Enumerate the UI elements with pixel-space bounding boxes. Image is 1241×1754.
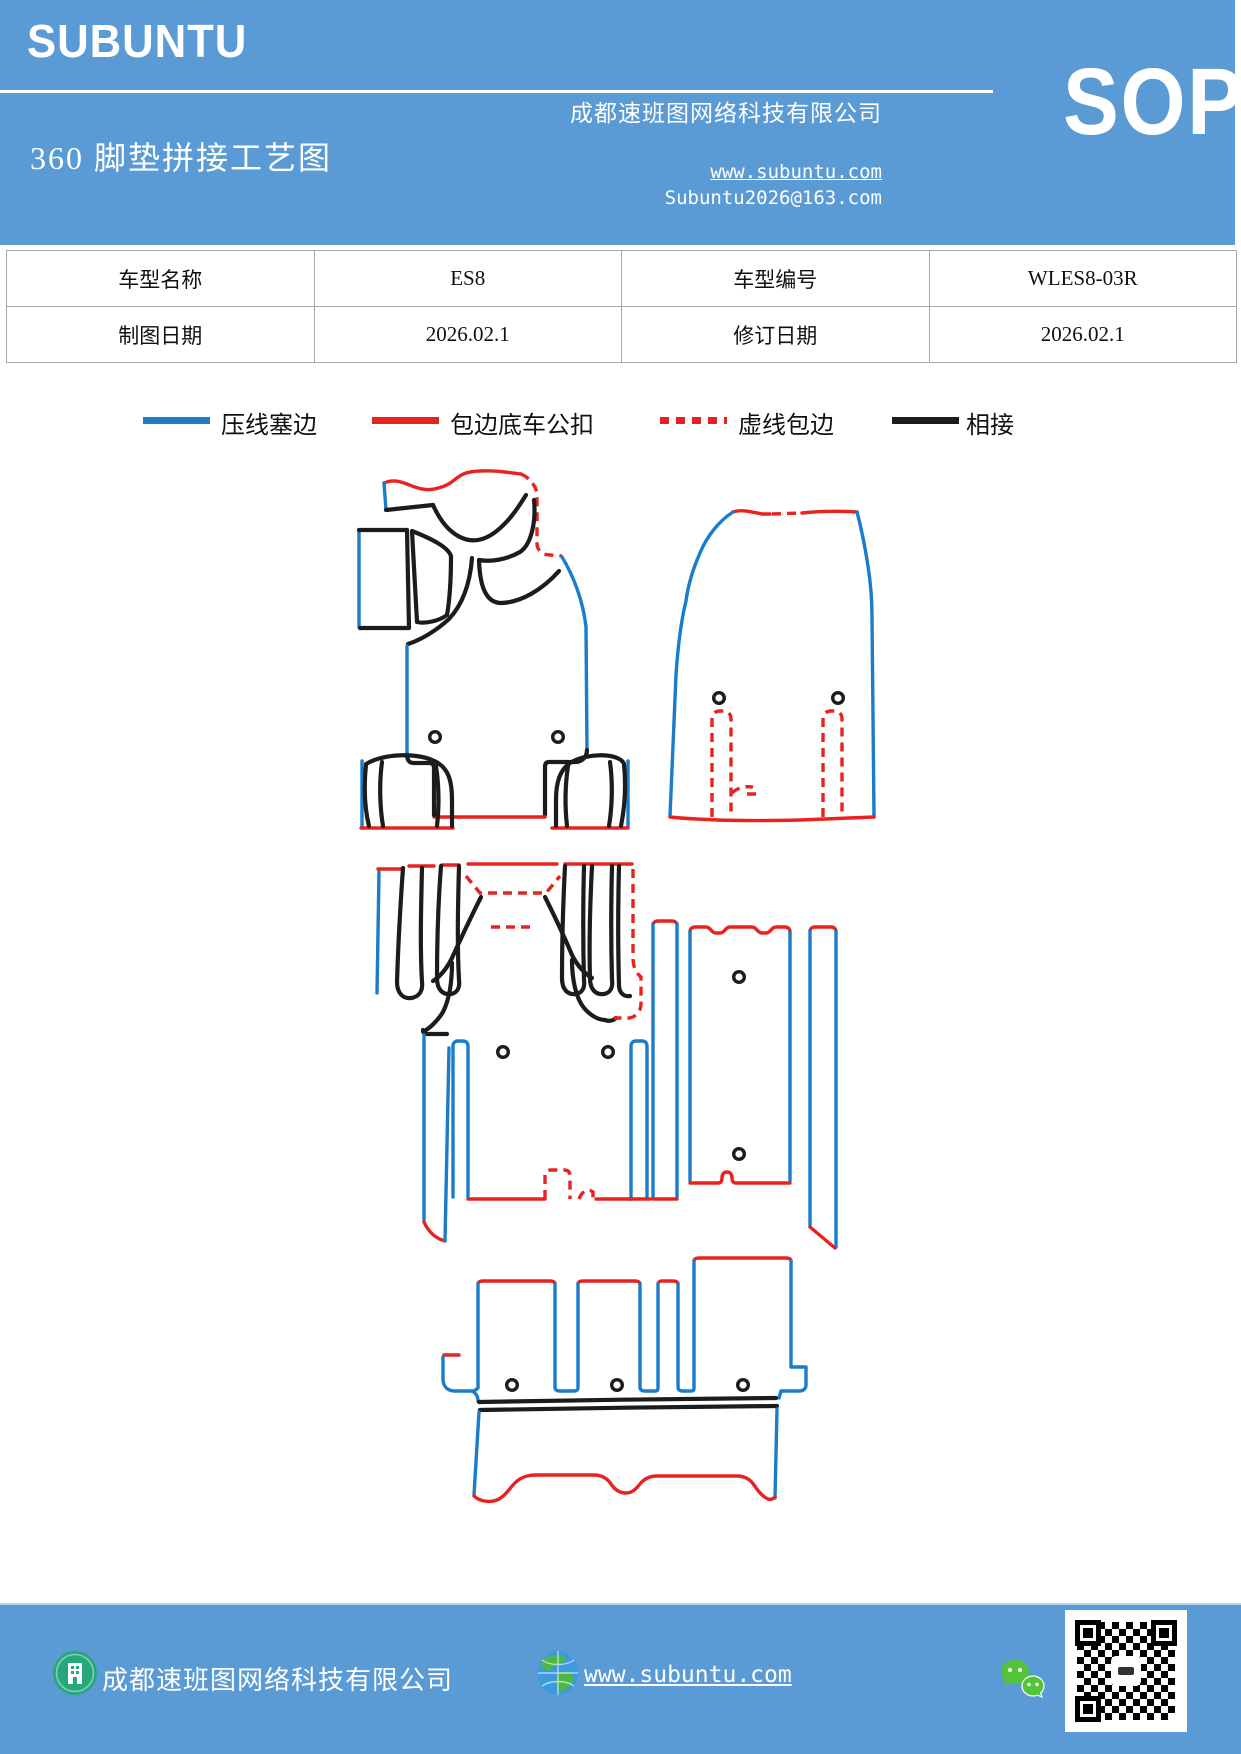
wechat-icon bbox=[998, 1658, 1046, 1700]
qr-finder-icon bbox=[1075, 1696, 1101, 1722]
mat-diagram bbox=[0, 0, 1241, 1754]
front-right-mat bbox=[670, 511, 874, 821]
qr-finder-icon bbox=[1151, 1620, 1177, 1646]
qr-code bbox=[1065, 1610, 1187, 1732]
sop-page: SUBUNTU 360 脚垫拼接工艺图 成都速班图网络科技有限公司 www.su… bbox=[0, 0, 1241, 1754]
front-left-mat bbox=[359, 471, 628, 828]
building-icon bbox=[52, 1650, 98, 1696]
globe-icon bbox=[536, 1650, 580, 1696]
footer-website-link[interactable]: www.subuntu.com bbox=[584, 1662, 792, 1688]
footer-company-name: 成都速班图网络科技有限公司 bbox=[102, 1660, 453, 1697]
trunk-mat bbox=[443, 1258, 806, 1501]
middle-row-mat bbox=[377, 864, 836, 1248]
qr-finder-icon bbox=[1075, 1620, 1101, 1646]
qr-center-logo bbox=[1111, 1656, 1141, 1686]
